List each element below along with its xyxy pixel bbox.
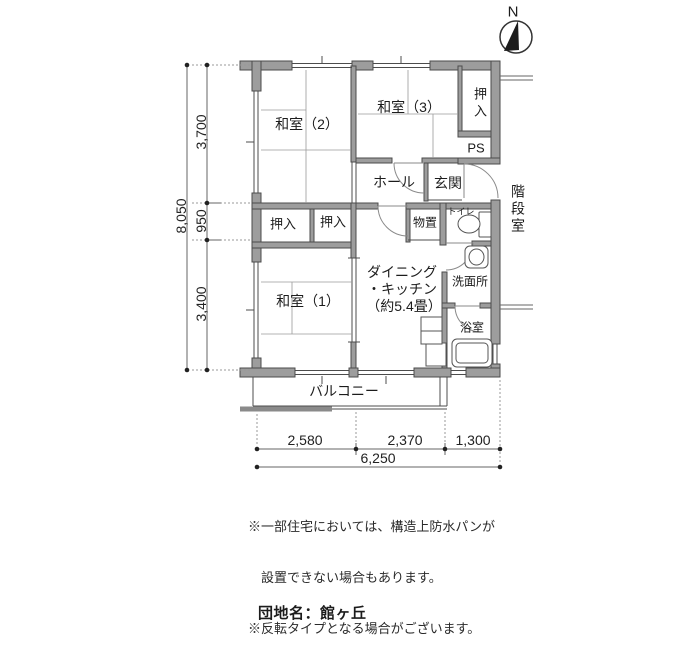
kitchen-counter: [421, 317, 442, 344]
room-label-oshiire-ne: 押入: [470, 87, 489, 121]
dim-width-left: 2,580: [287, 432, 322, 448]
room-label-balcony: バルコニー: [309, 381, 379, 401]
room-label-oshiire-a: 押入: [270, 214, 296, 233]
washer-pan: [426, 343, 446, 366]
north-label: N: [508, 4, 519, 21]
dim-width-total: 6,250: [360, 450, 395, 466]
dim-width-right: 1,300: [455, 432, 490, 448]
room-label-hall: ホール: [373, 172, 415, 192]
property-info-block: 団地名：館ヶ丘 型 式：3DK タイプ：3D 図面No：20260: [258, 569, 370, 650]
room-label-oshiire-b: 押入: [320, 212, 346, 231]
note-line: ※一部住宅においては、構造上防水パンが: [248, 518, 520, 535]
dim-height-mid: 950: [193, 209, 209, 232]
room-label-genkan: 玄関: [434, 173, 462, 193]
dim-width-mid: 2,370: [387, 432, 422, 448]
bathtub-icon: [452, 339, 492, 367]
room-label-senmenjo: 洗面所: [452, 273, 488, 290]
dim-height-bottom: 3,400: [193, 286, 209, 321]
sink-icon: [465, 246, 488, 268]
room-label-yokushitsu: 浴室: [460, 319, 484, 336]
floorplan-page: N 和室（2） 和室（3） 押入 PS ホール 玄関 階段室 押入 押入 物置 …: [0, 0, 700, 650]
compass-icon: [500, 21, 532, 53]
room-label-dk-line3: （約5.4畳）: [366, 296, 441, 316]
room-label-washitsu3: 和室（3）: [377, 97, 441, 117]
dim-height-total: 8,050: [173, 198, 189, 233]
dimension-lines: [185, 63, 503, 470]
room-label-kaidanshitsu: 階段室: [508, 184, 528, 235]
dim-height-top: 3,700: [193, 114, 209, 149]
room-label-washitsu1: 和室（1）: [276, 291, 340, 311]
room-label-monooki: 物置: [413, 214, 437, 231]
room-label-ps: PS: [467, 141, 484, 156]
room-label-toire: トイレ: [447, 205, 474, 218]
info-line-danchi-name: 団地名：館ヶ丘: [258, 605, 370, 623]
room-label-washitsu2: 和室（2）: [275, 114, 339, 134]
